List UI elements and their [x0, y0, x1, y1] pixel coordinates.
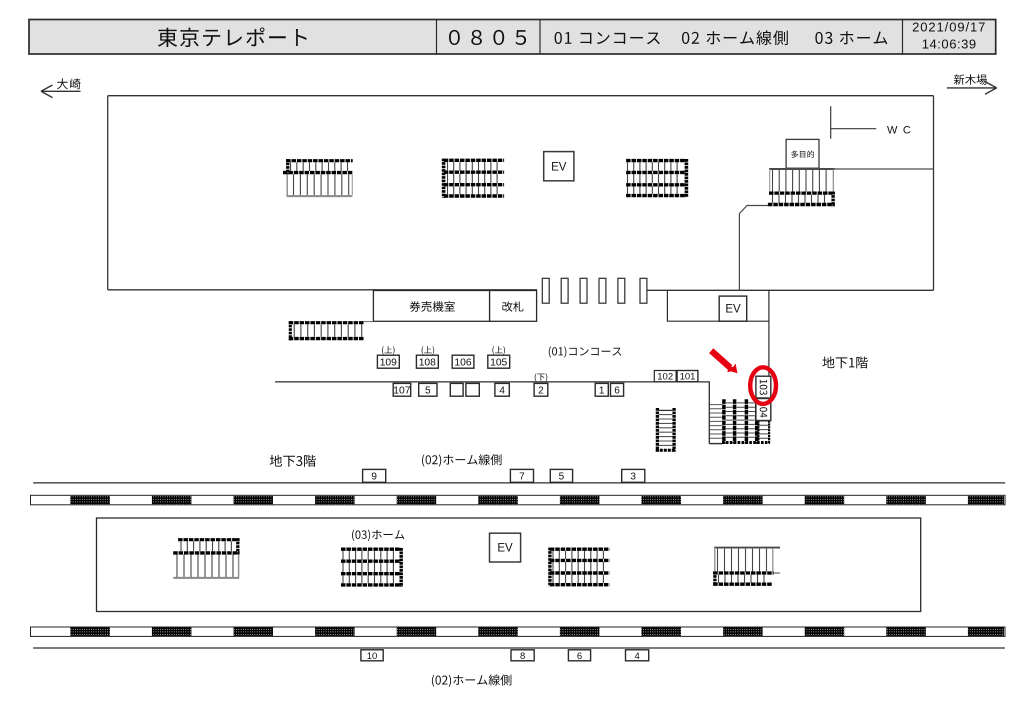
svg-text:5: 5: [425, 386, 431, 397]
svg-text:4: 4: [634, 651, 639, 662]
svg-text:W C: W C: [887, 124, 912, 136]
svg-text:102: 102: [657, 372, 673, 383]
svg-text:108: 108: [419, 357, 436, 368]
svg-text:2: 2: [538, 386, 544, 397]
svg-text:107: 107: [393, 386, 410, 397]
svg-text:106: 106: [454, 357, 471, 368]
svg-text:8: 8: [520, 651, 525, 662]
svg-text:1: 1: [599, 386, 605, 397]
svg-text:109: 109: [380, 357, 397, 368]
svg-text:9: 9: [371, 472, 377, 483]
svg-text:EV: EV: [551, 161, 567, 173]
svg-text:4: 4: [499, 386, 505, 397]
svg-text:105: 105: [490, 357, 507, 368]
svg-text:14:06:39: 14:06:39: [922, 37, 977, 52]
svg-text:6: 6: [577, 651, 582, 662]
svg-text:2021/09/17: 2021/09/17: [912, 20, 986, 35]
svg-text:5: 5: [559, 472, 565, 483]
svg-text:7: 7: [519, 472, 525, 483]
svg-text:101: 101: [680, 372, 696, 383]
svg-text:EV: EV: [497, 543, 513, 555]
svg-text:EV: EV: [725, 304, 741, 316]
svg-text:10: 10: [367, 651, 378, 662]
svg-text:3: 3: [630, 472, 636, 483]
svg-text:6: 6: [614, 386, 620, 397]
